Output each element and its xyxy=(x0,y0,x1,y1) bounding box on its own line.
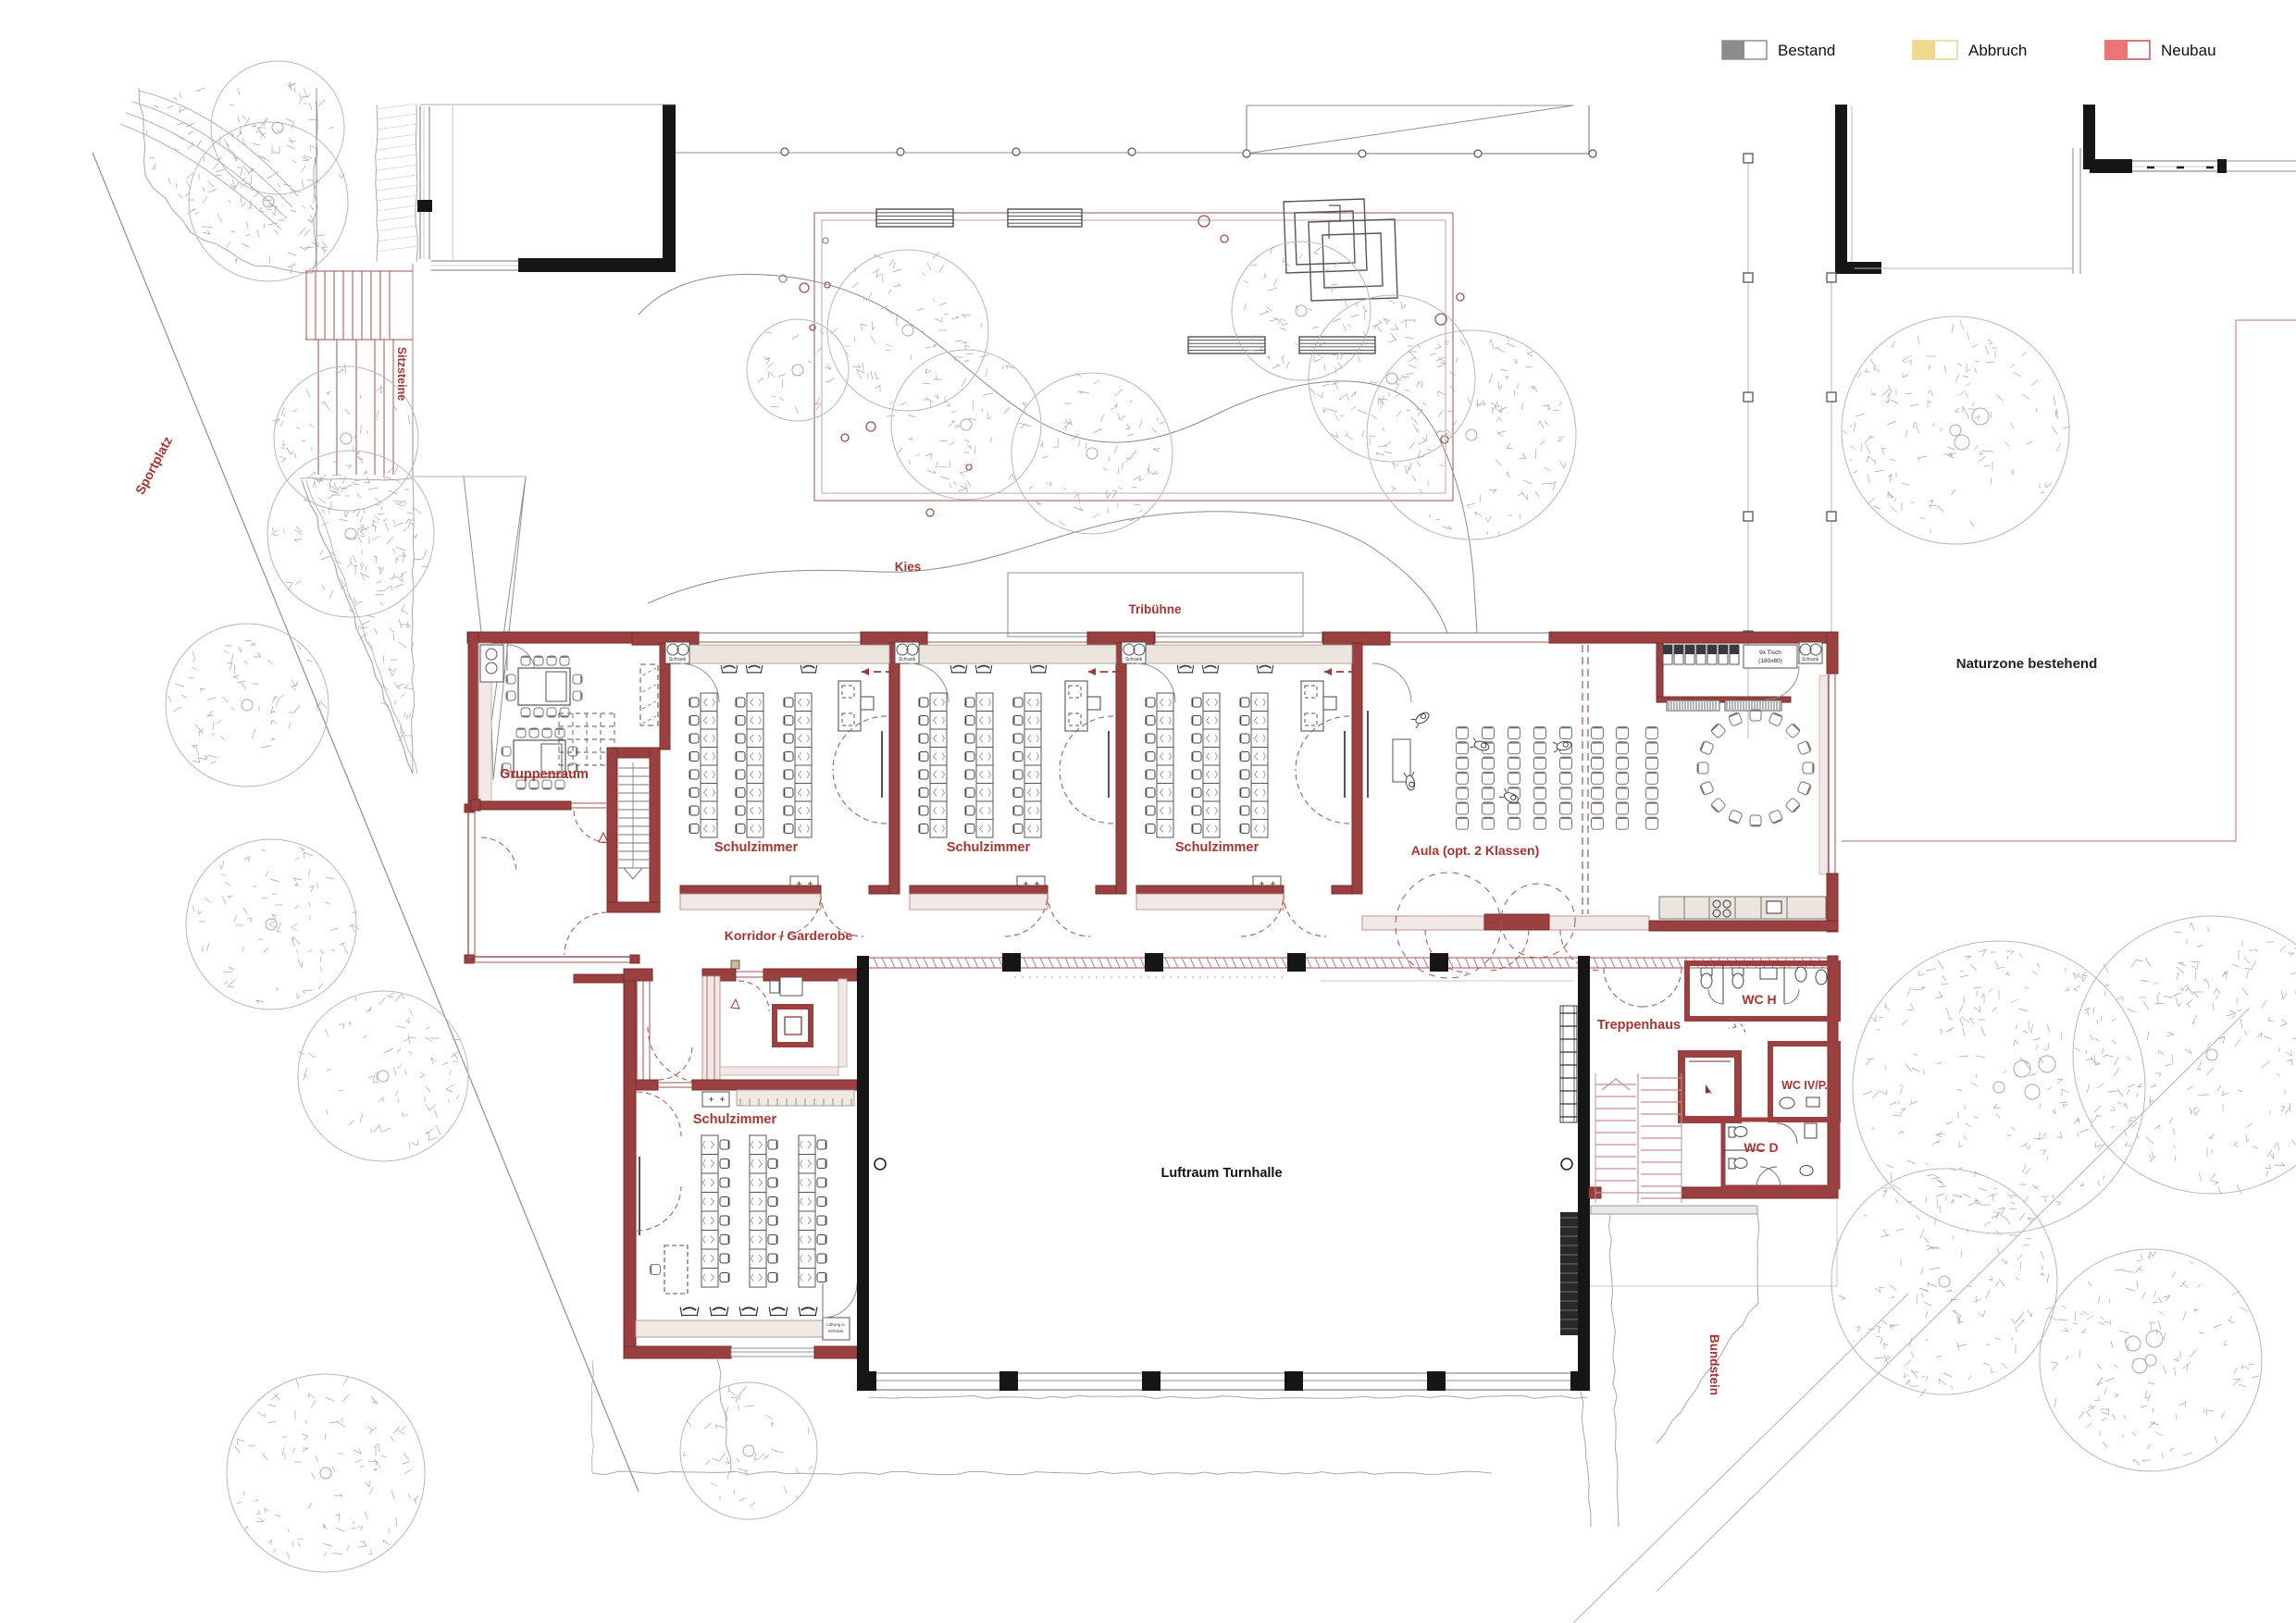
svg-text:Luftraum Turnhalle: Luftraum Turnhalle xyxy=(1160,1166,1282,1181)
svg-text:Tribühne: Tribühne xyxy=(1129,602,1182,616)
svg-text:Korridor / Garderobe: Korridor / Garderobe xyxy=(725,928,853,943)
svg-text:Schrank: Schrank xyxy=(899,657,916,663)
svg-text:Treppenhaus: Treppenhaus xyxy=(1597,1018,1681,1033)
svg-text:WC IV/P.: WC IV/P. xyxy=(1781,1079,1828,1092)
svg-text:Schrank: Schrank xyxy=(828,1329,844,1333)
svg-text:9x Tisch: 9x Tisch xyxy=(1759,650,1781,656)
svg-text:WC D: WC D xyxy=(1744,1140,1778,1155)
svg-text:Schulzimmer: Schulzimmer xyxy=(947,840,1031,855)
svg-text:Schulzimmer: Schulzimmer xyxy=(1175,840,1260,855)
svg-text:Schulzimmer: Schulzimmer xyxy=(693,1112,777,1127)
svg-text:WC H: WC H xyxy=(1742,992,1776,1007)
svg-text:Bestand: Bestand xyxy=(1778,42,1835,59)
svg-text:Aula (opt. 2 Klassen): Aula (opt. 2 Klassen) xyxy=(1411,843,1539,858)
svg-text:Sitzsteine: Sitzsteine xyxy=(395,347,408,401)
svg-text:Neubau: Neubau xyxy=(2161,42,2216,59)
svg-text:Gruppenraum: Gruppenraum xyxy=(500,767,589,782)
svg-text:Kies: Kies xyxy=(895,560,922,574)
svg-text:Bundstein: Bundstein xyxy=(1707,1334,1721,1395)
svg-text:Schrank: Schrank xyxy=(1802,657,1819,663)
svg-text:Naturzone bestehend: Naturzone bestehend xyxy=(1956,656,2098,672)
svg-text:(180x80): (180x80) xyxy=(1758,658,1782,664)
svg-text:Schulzimmer: Schulzimmer xyxy=(714,840,799,855)
svg-text:Lüftung in: Lüftung in xyxy=(826,1322,845,1327)
svg-text:Schrank: Schrank xyxy=(669,657,687,663)
svg-text:Schrank: Schrank xyxy=(1125,657,1143,663)
svg-text:Abbruch: Abbruch xyxy=(1968,42,2027,59)
